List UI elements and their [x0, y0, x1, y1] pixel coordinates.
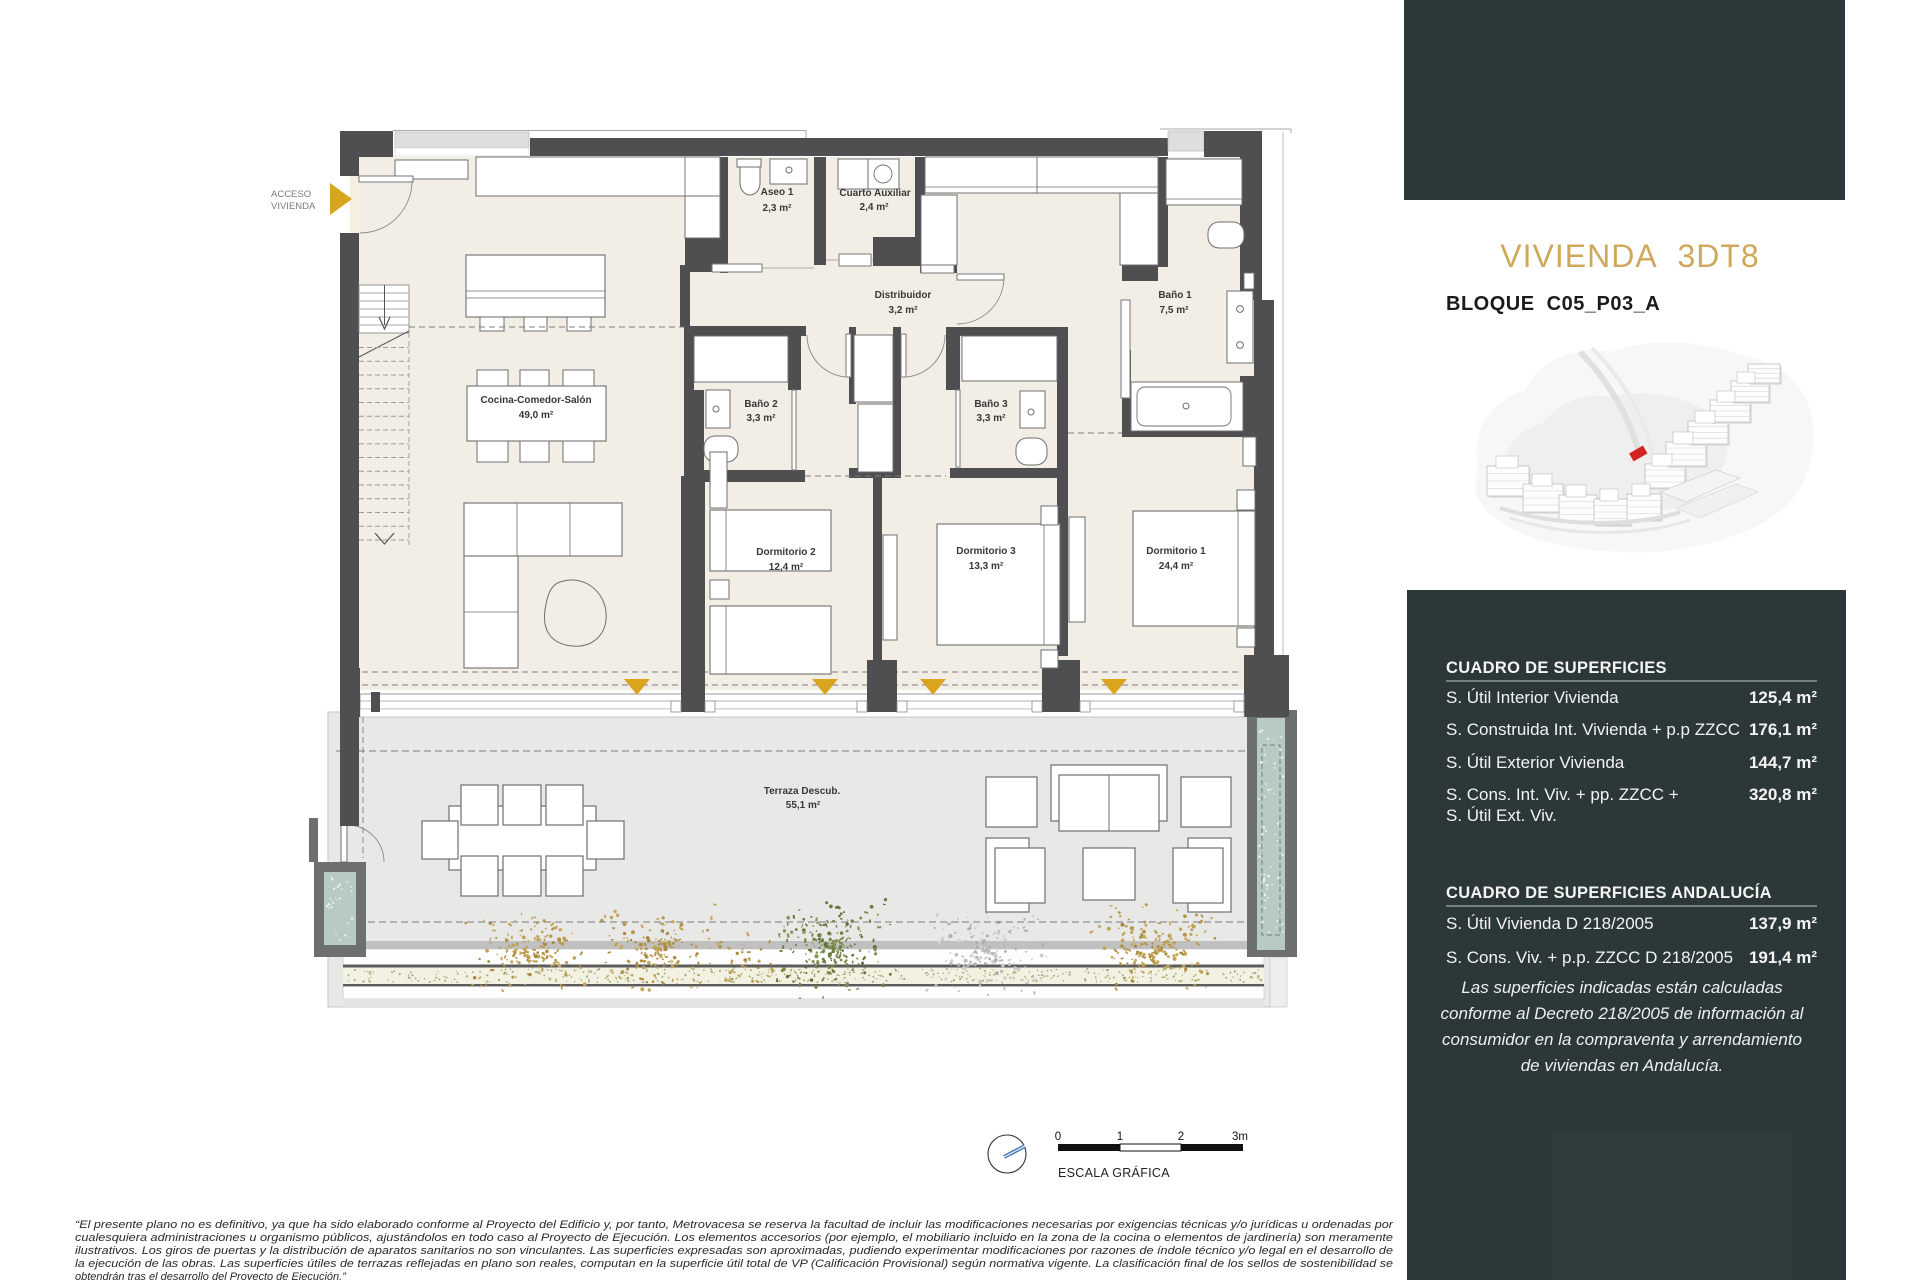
svg-text:obtendrán tras el desarrollo d: obtendrán tras el desarrollo del Proyect… [75, 1271, 347, 1280]
svg-text:ilustrativos. Los giros de pue: ilustrativos. Los giros de puertas y la … [75, 1245, 1393, 1257]
svg-text:VIVIENDA: VIVIENDA [271, 201, 316, 212]
svg-text:3,3 m²: 3,3 m² [747, 413, 777, 424]
svg-text:Dormitorio 1: Dormitorio 1 [1146, 546, 1206, 557]
svg-text:12,4 m²: 12,4 m² [769, 562, 804, 573]
svg-text:Baño 3: Baño 3 [974, 399, 1008, 410]
svg-text:49,0 m²: 49,0 m² [519, 410, 554, 421]
svg-text:S. Útil Vivienda D 218/2005: S. Útil Vivienda D 218/2005 [1446, 914, 1654, 933]
svg-text:S. Construida Int. Vivienda +: S. Construida Int. Vivienda + p.p ZZCC [1446, 720, 1740, 739]
svg-text:24,4 m²: 24,4 m² [1159, 561, 1194, 572]
svg-text:2,4 m²: 2,4 m² [860, 202, 890, 213]
svg-text:ACCESO: ACCESO [271, 189, 311, 200]
svg-text:“El presente plano no es defin: “El presente plano no es definitivo, ya … [75, 1219, 1395, 1231]
svg-text:2,3 m²: 2,3 m² [763, 203, 793, 214]
svg-text:Las superficies indicadas está: Las superficies indicadas están calculad… [1461, 978, 1783, 997]
svg-text:de viviendas en Andalucía.: de viviendas en Andalucía. [1521, 1056, 1724, 1075]
svg-text:3,2 m²: 3,2 m² [889, 305, 919, 316]
svg-text:CUADRO DE SUPERFICIES: CUADRO DE SUPERFICIES [1446, 659, 1667, 677]
svg-text:7,5 m²: 7,5 m² [1160, 305, 1190, 316]
svg-text:VIVIENDA 3DT8: VIVIENDA 3DT8 [1500, 238, 1759, 274]
svg-text:S. Útil Ext. Viv.: S. Útil Ext. Viv. [1446, 806, 1557, 825]
svg-text:ESCALA GRÁFICA: ESCALA GRÁFICA [1058, 1165, 1170, 1180]
svg-text:Terraza Descub.: Terraza Descub. [764, 786, 841, 797]
svg-text:3m: 3m [1232, 1131, 1248, 1143]
svg-text:Baño 2: Baño 2 [744, 399, 778, 410]
svg-text:Cuarto Auxiliar: Cuarto Auxiliar [839, 188, 910, 199]
svg-text:cualesquiera administraciones: cualesquiera administraciones u organism… [75, 1232, 1393, 1244]
svg-text:125,4 m²: 125,4 m² [1749, 688, 1817, 707]
svg-text:Dormitorio 3: Dormitorio 3 [956, 546, 1016, 557]
svg-text:0: 0 [1055, 1131, 1061, 1143]
svg-text:la ejecución de las obras. Las: la ejecución de las obras. Las superfici… [75, 1258, 1393, 1270]
svg-text:2: 2 [1178, 1131, 1184, 1143]
svg-text:1: 1 [1117, 1131, 1123, 1143]
svg-text:Dormitorio 2: Dormitorio 2 [756, 547, 816, 558]
svg-text:S. Útil Exterior Vivienda: S. Útil Exterior Vivienda [1446, 753, 1625, 772]
svg-text:Distribuidor: Distribuidor [875, 290, 932, 301]
svg-text:Aseo 1: Aseo 1 [761, 187, 794, 198]
svg-text:191,4 m²: 191,4 m² [1749, 948, 1817, 967]
svg-text:S. Cons. Int. Viv. + pp. ZZCC: S. Cons. Int. Viv. + pp. ZZCC + [1446, 785, 1679, 804]
svg-text:320,8 m²: 320,8 m² [1749, 785, 1817, 804]
svg-text:13,3 m²: 13,3 m² [969, 561, 1004, 572]
svg-text:conforme al Decreto 218/2005 d: conforme al Decreto 218/2005 de informac… [1441, 1004, 1805, 1023]
svg-text:176,1 m²: 176,1 m² [1749, 720, 1817, 739]
svg-text:S. Cons. Viv. + p.p. ZZCC D 21: S. Cons. Viv. + p.p. ZZCC D 218/2005 [1446, 948, 1733, 967]
svg-text:consumidor en la compraventa y: consumidor en la compraventa y arrendami… [1442, 1030, 1802, 1049]
svg-text:BLOQUE C05_P03_A: BLOQUE C05_P03_A [1446, 293, 1660, 315]
svg-text:Baño 1: Baño 1 [1158, 290, 1192, 301]
svg-text:CUADRO DE SUPERFICIES ANDALUCÍ: CUADRO DE SUPERFICIES ANDALUCÍA [1446, 883, 1772, 902]
svg-text:S. Útil Interior Vivienda: S. Útil Interior Vivienda [1446, 688, 1619, 707]
svg-text:3,3 m²: 3,3 m² [977, 413, 1007, 424]
svg-text:Cocina-Comedor-Salón: Cocina-Comedor-Salón [480, 395, 591, 406]
svg-text:55,1 m²: 55,1 m² [786, 800, 821, 811]
svg-text:144,7 m²: 144,7 m² [1749, 753, 1817, 772]
svg-text:137,9 m²: 137,9 m² [1749, 914, 1817, 933]
